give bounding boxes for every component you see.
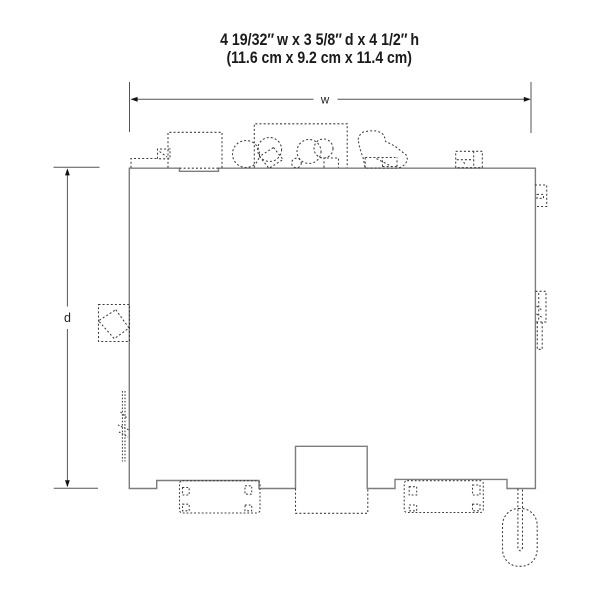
svg-text:4 19/32″ w x 3 5/8″ d x 4 1/2″: 4 19/32″ w x 3 5/8″ d x 4 1/2″ h — [220, 30, 419, 49]
svg-text:d: d — [64, 311, 71, 325]
svg-text:(11.6 cm x 9.2 cm x 11.4 cm): (11.6 cm x 9.2 cm x 11.4 cm) — [226, 48, 412, 67]
svg-text:w: w — [320, 95, 330, 107]
